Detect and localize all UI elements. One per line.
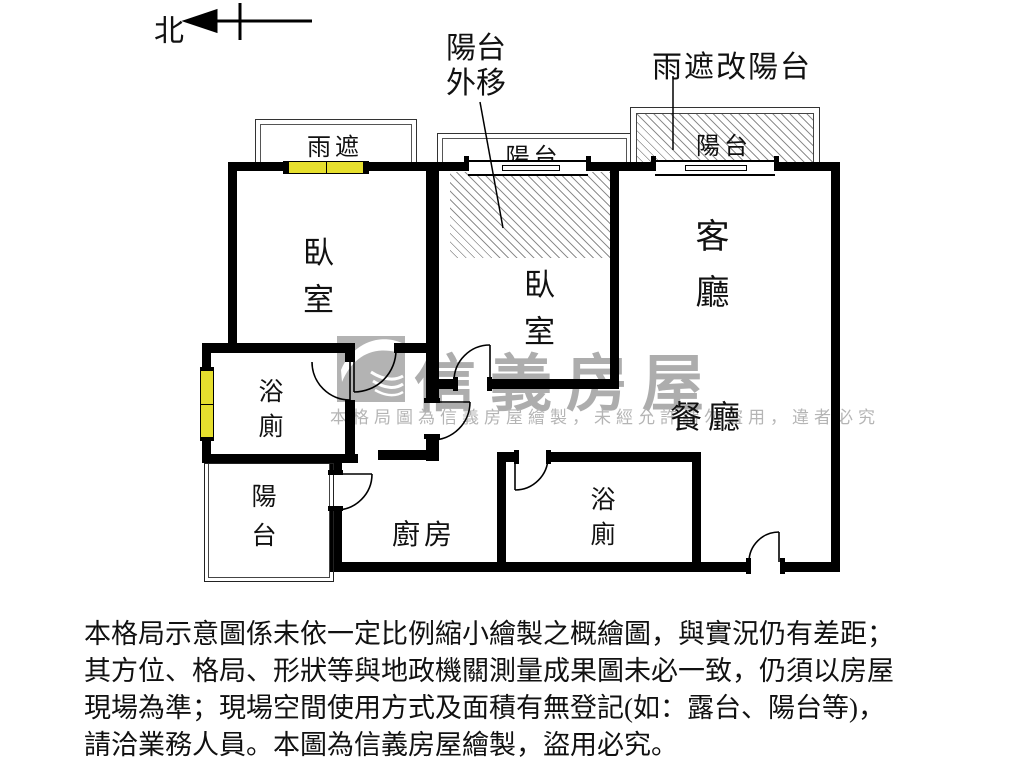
jamb bbox=[328, 470, 343, 475]
window-bath-left-yellow bbox=[200, 367, 214, 441]
balcony-right-label: 陽台 bbox=[630, 126, 818, 161]
bath-left-label: 浴廁 bbox=[250, 378, 286, 448]
disclaimer-line: 其方位、格局、形狀等與地政機關測量成果圖未必一致，仍須以房屋 bbox=[84, 653, 954, 690]
annotation-balcony-moved-out-line2: 外移 bbox=[446, 66, 506, 101]
wall-corridor-south bbox=[378, 450, 438, 460]
door-bedroom-mid bbox=[454, 345, 490, 381]
disclaimer-line: 請洽業務人員。本圖為信義房屋繪製，盜用必究。 bbox=[84, 727, 954, 764]
kitchen-label: 廚房 bbox=[392, 513, 456, 553]
jamb bbox=[514, 450, 519, 464]
jamb bbox=[464, 156, 469, 171]
annotation-balcony-moved-out: 陽台 外移 bbox=[446, 31, 506, 101]
wall-right-outer bbox=[831, 162, 840, 572]
balcony-bottom-label: 陽台 bbox=[243, 483, 279, 561]
window-top-middle-sill bbox=[502, 165, 560, 171]
jamb bbox=[328, 506, 343, 511]
wall-bedroom-divider-a bbox=[426, 162, 439, 400]
jamb bbox=[586, 156, 591, 171]
window-top-middle bbox=[468, 160, 588, 176]
living-room-label: 客廳 bbox=[684, 218, 733, 330]
wall-bath-left-east-a bbox=[345, 343, 355, 362]
wall-bath-left-south bbox=[202, 454, 358, 463]
jamb bbox=[746, 558, 751, 574]
jamb bbox=[487, 377, 492, 391]
wall-bedroom-mid-south-b bbox=[491, 379, 619, 389]
bedroom-mid-label: 臥室 bbox=[514, 268, 559, 362]
jamb bbox=[546, 450, 551, 464]
door-balcony-kitchen bbox=[336, 474, 372, 510]
window-top-yellow bbox=[283, 161, 369, 174]
bath-right-label: 浴廁 bbox=[582, 486, 618, 556]
jamb bbox=[780, 558, 785, 574]
jamb bbox=[651, 156, 656, 171]
window-top-right-sill bbox=[685, 165, 747, 171]
door-bath-left bbox=[312, 362, 350, 400]
annotation-balcony-moved-out-line1: 陽台 bbox=[446, 31, 506, 66]
door-bath-right bbox=[515, 457, 548, 490]
wall-bedroom-mid-east bbox=[610, 162, 619, 389]
disclaimer-block: 本格局示意圖係未依一定比例縮小繪製之概繪圖，與實況仍有差距； 其方位、格局、形狀… bbox=[84, 616, 954, 764]
north-label: 北 bbox=[154, 6, 184, 50]
wall-bedroom-left-west bbox=[228, 162, 237, 352]
jamb bbox=[453, 377, 458, 391]
wall-bath-left-east-b bbox=[345, 400, 355, 454]
disclaimer-line: 本格局示意圖係未依一定比例縮小繪製之概繪圖，與實況仍有差距； bbox=[84, 616, 954, 653]
floor-plan-page: 信義房屋 本格局圖為信義房屋繪製，未經允許請勿盜用，違者必究 北 陽台 外移 雨… bbox=[0, 0, 1024, 768]
wall-bottom-right-of-entry bbox=[782, 562, 840, 572]
window-bath-left-divider bbox=[201, 404, 213, 405]
annotation-rain-cover-to-balcony: 雨遮改陽台 bbox=[652, 42, 812, 86]
wall-bath-right-east bbox=[692, 452, 701, 572]
window-top-yellow-divider bbox=[326, 162, 327, 173]
wall-bath-right-west bbox=[497, 452, 506, 572]
window-top-right bbox=[655, 160, 775, 176]
jamb bbox=[424, 434, 440, 439]
bedroom-left-label: 臥室 bbox=[293, 236, 338, 330]
dining-room-label: 餐廳 bbox=[670, 392, 746, 438]
north-arrow-icon bbox=[186, 3, 312, 40]
disclaimer-line: 現場為準；現場空間使用方式及面積有無登記(如：露台、陽台等)， bbox=[84, 690, 954, 727]
door-entrance bbox=[749, 532, 779, 562]
rain-cover-label: 雨遮 bbox=[255, 127, 415, 162]
wall-bottom-left-of-entry bbox=[330, 562, 748, 572]
door-bedroom-left bbox=[354, 350, 396, 392]
jamb bbox=[424, 398, 440, 403]
wall-bedroom-left-south-a bbox=[202, 343, 354, 353]
wall-bath-right-north-b bbox=[551, 452, 700, 462]
jamb bbox=[774, 156, 779, 171]
bedroom-mid-hatch-area bbox=[450, 172, 610, 258]
